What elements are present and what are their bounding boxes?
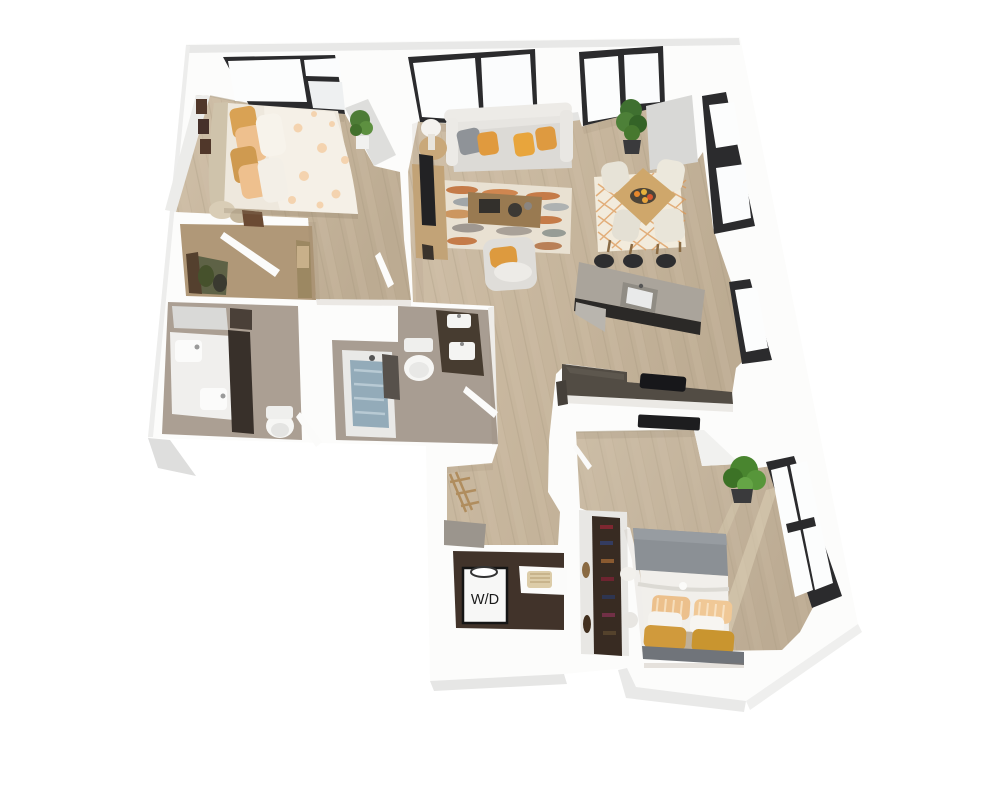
svg-text:W/D: W/D	[471, 592, 499, 608]
